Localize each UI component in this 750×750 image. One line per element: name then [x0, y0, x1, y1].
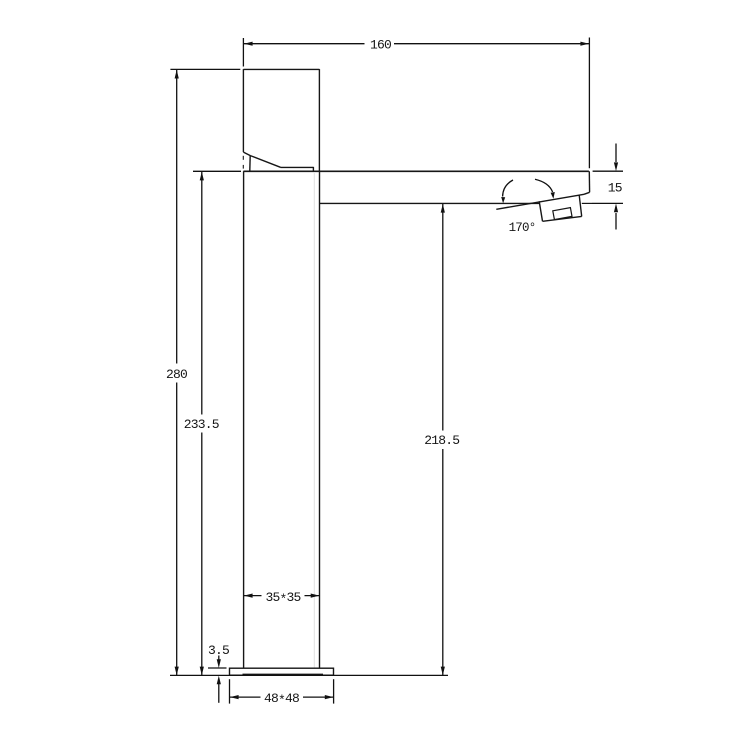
svg-text:35*35: 35*35 [265, 590, 300, 607]
svg-text:233.5: 233.5 [184, 417, 219, 432]
svg-text:48*48: 48*48 [264, 691, 299, 708]
svg-text:160: 160 [370, 38, 391, 53]
svg-text:3.5: 3.5 [208, 643, 229, 658]
svg-text:280: 280 [166, 367, 187, 382]
svg-text:170°: 170° [509, 221, 536, 235]
svg-text:15: 15 [608, 181, 622, 196]
svg-text:218.5: 218.5 [424, 433, 459, 448]
